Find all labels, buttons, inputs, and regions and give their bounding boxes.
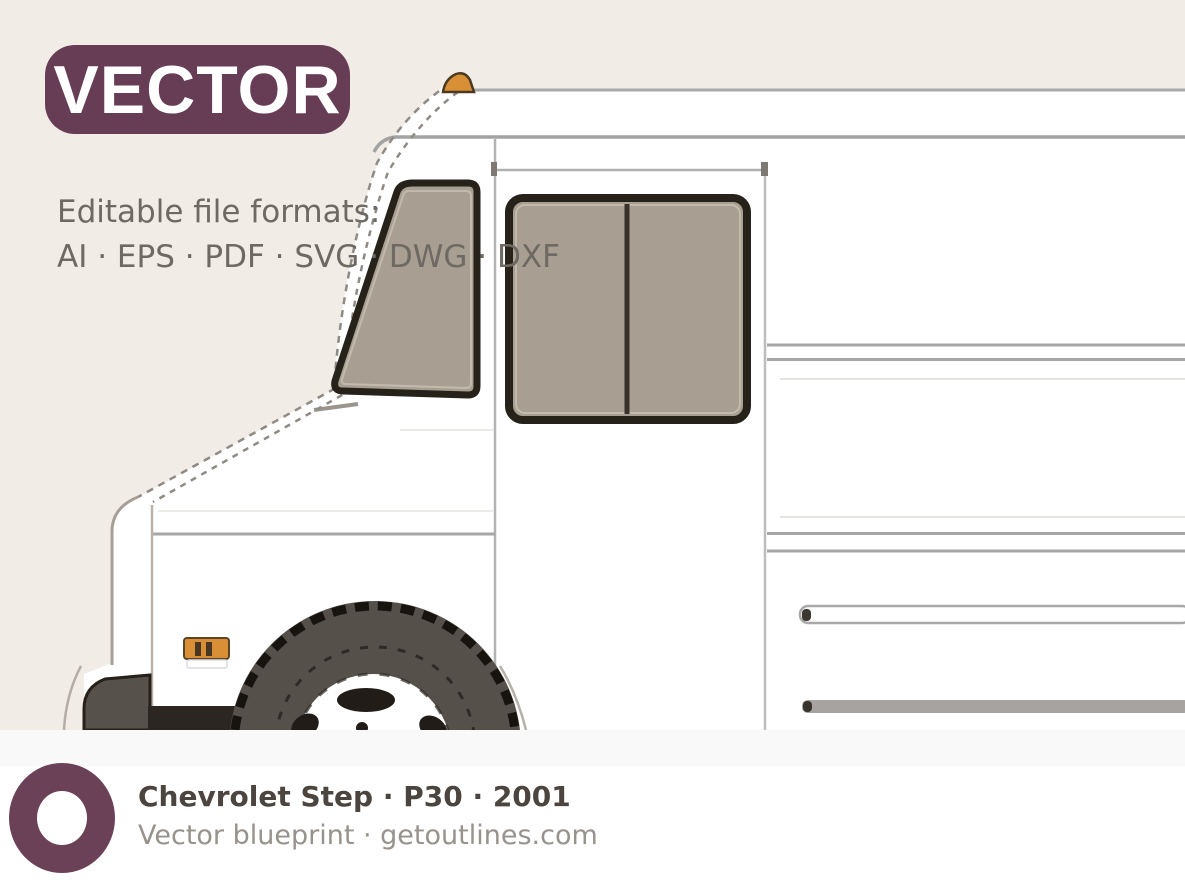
product-preview-card: VECTOR Editable file formats: AI · EPS ·… xyxy=(0,0,1185,880)
file-formats-list: AI · EPS · PDF · SVG · DWG · DXF xyxy=(57,235,560,280)
footer: Chevrolet Step · P30 · 2001 Vector bluep… xyxy=(0,730,1185,880)
file-formats-caption: Editable file formats: AI · EPS · PDF · … xyxy=(57,190,560,280)
donut-ring-icon xyxy=(9,763,115,873)
site-subtitle: Vector blueprint · getoutlines.com xyxy=(138,820,598,851)
image-bottom-strip xyxy=(0,730,1185,766)
vector-badge-label: VECTOR xyxy=(53,56,341,124)
roof-marker-light xyxy=(443,73,474,92)
vector-badge: VECTOR xyxy=(45,45,350,134)
vehicle-title: Chevrolet Step · P30 · 2001 xyxy=(138,780,571,813)
file-formats-heading: Editable file formats: xyxy=(57,190,560,235)
